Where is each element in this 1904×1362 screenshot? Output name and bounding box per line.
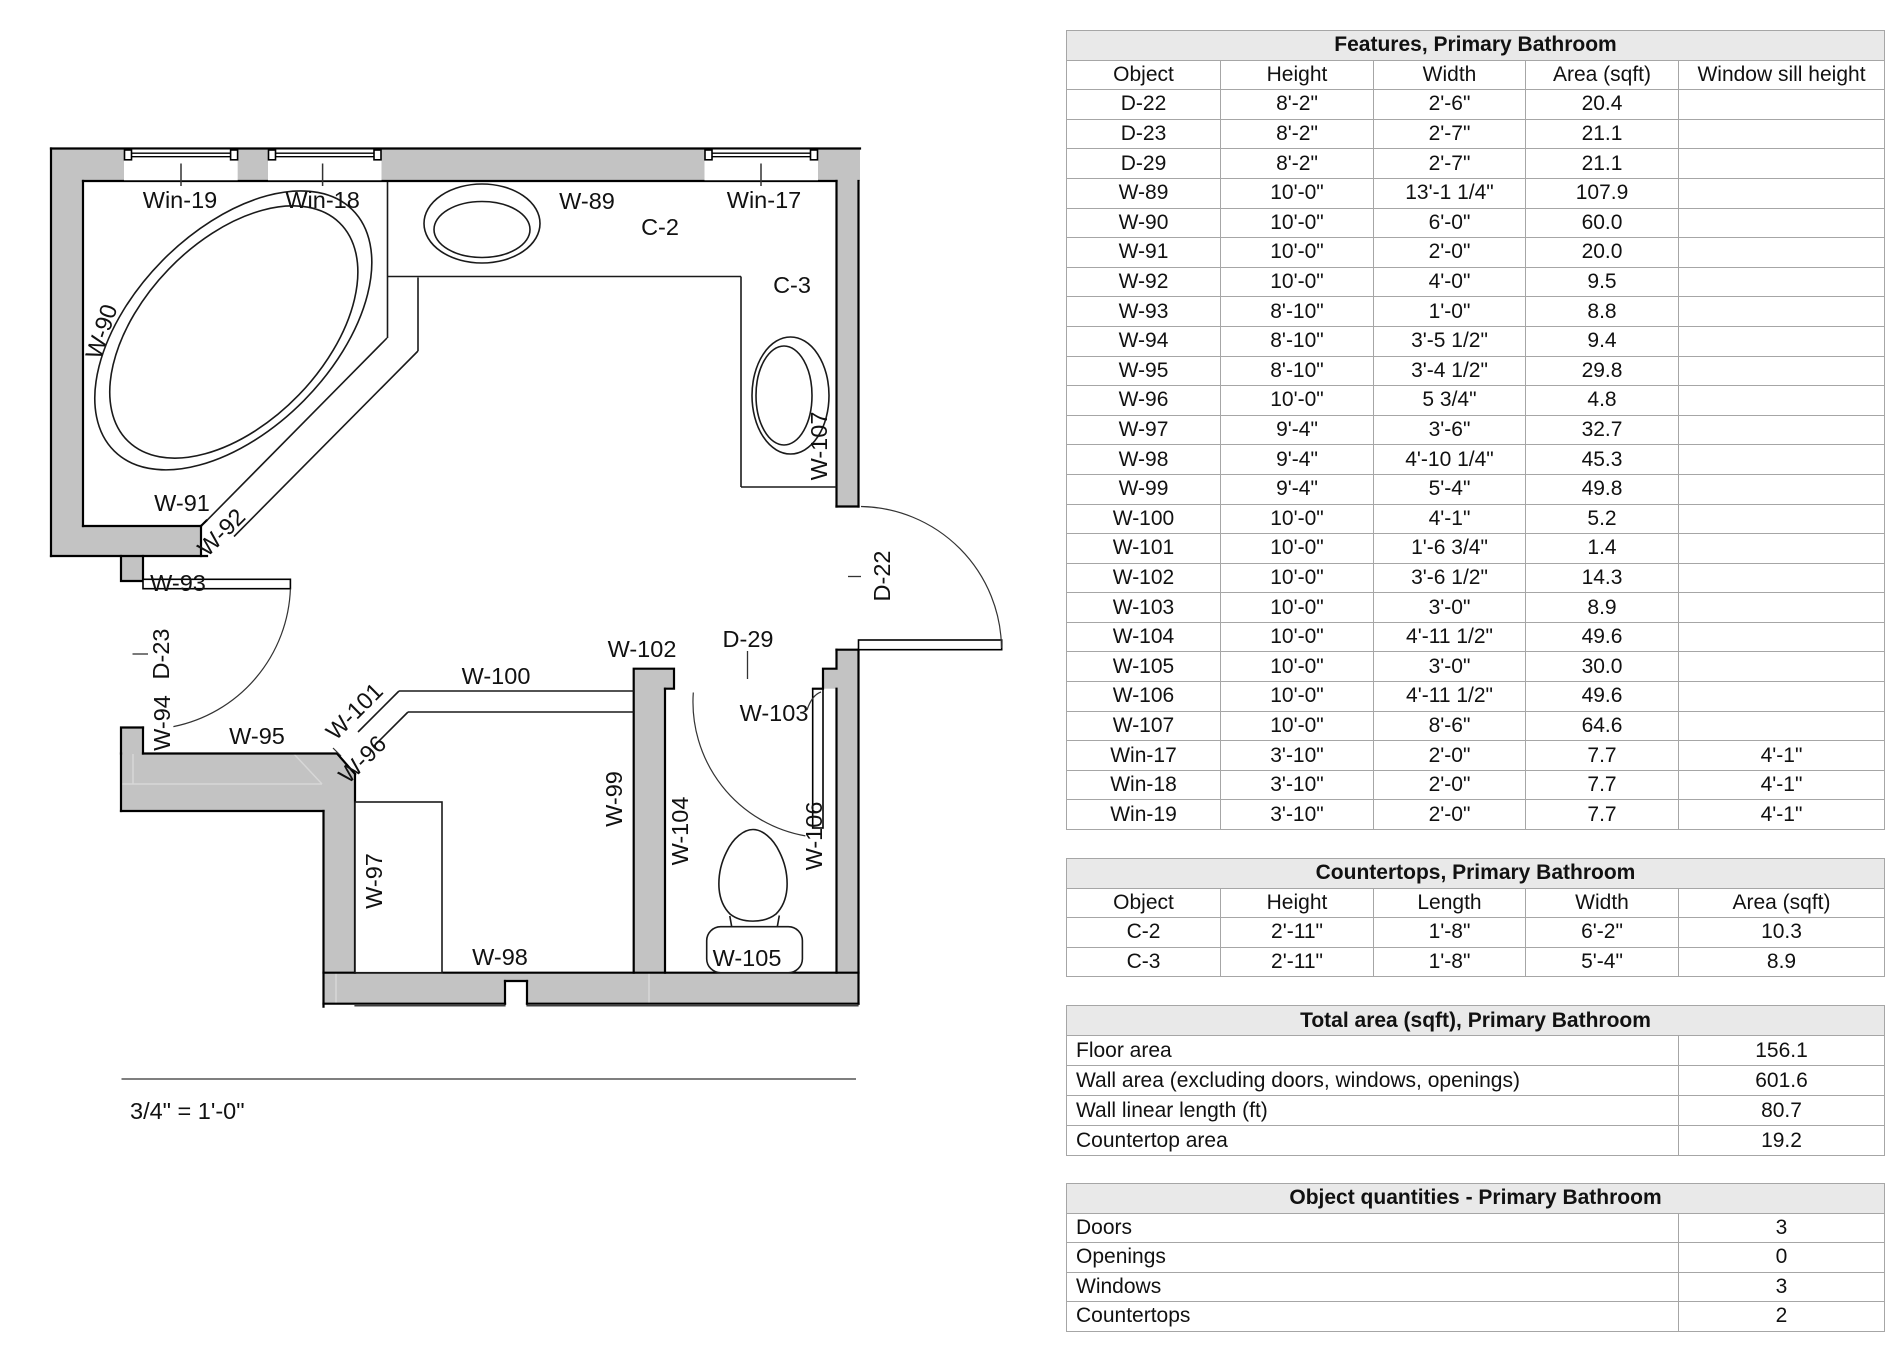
svg-text:C-2: C-2 bbox=[641, 214, 679, 240]
svg-text:W-91: W-91 bbox=[154, 490, 210, 516]
svg-text:C-3: C-3 bbox=[773, 272, 811, 298]
svg-text:Win-18: Win-18 bbox=[285, 187, 359, 213]
svg-text:W-98: W-98 bbox=[472, 944, 528, 970]
svg-text:W-95: W-95 bbox=[229, 723, 285, 749]
svg-text:W-104: W-104 bbox=[667, 797, 693, 866]
svg-text:W-102: W-102 bbox=[608, 636, 677, 662]
svg-text:Win-17: Win-17 bbox=[727, 187, 801, 213]
svg-text:W-106: W-106 bbox=[801, 802, 827, 871]
svg-text:D-22: D-22 bbox=[869, 551, 895, 602]
svg-text:W-97: W-97 bbox=[361, 853, 387, 909]
svg-text:W-89: W-89 bbox=[559, 188, 615, 214]
svg-text:3/4" = 1'-0": 3/4" = 1'-0" bbox=[130, 1098, 245, 1124]
svg-text:D-23: D-23 bbox=[148, 629, 174, 680]
svg-text:W-94: W-94 bbox=[149, 695, 175, 751]
svg-text:D-29: D-29 bbox=[723, 626, 774, 652]
svg-text:Win-19: Win-19 bbox=[143, 187, 217, 213]
svg-text:W-105: W-105 bbox=[713, 945, 782, 971]
svg-text:W-103: W-103 bbox=[740, 700, 809, 726]
svg-text:W-107: W-107 bbox=[806, 412, 832, 481]
svg-text:W-93: W-93 bbox=[150, 570, 206, 596]
svg-text:W-99: W-99 bbox=[601, 771, 627, 827]
svg-text:W-100: W-100 bbox=[462, 663, 531, 689]
